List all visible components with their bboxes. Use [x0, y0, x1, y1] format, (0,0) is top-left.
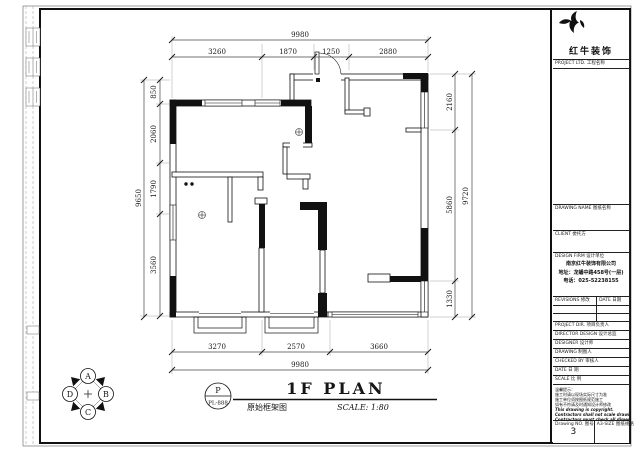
bay-windows: [194, 317, 318, 333]
plan-scale-note: SCALE: 1:80: [337, 403, 389, 412]
stamp-code-label: PL-888: [208, 401, 228, 407]
title-block: 红牛装饰 PROJECT LTD. 工程名称 DRAWING NAME 图纸名称…: [553, 10, 630, 443]
project-name-area: [553, 69, 629, 205]
floor-drain-icon: [199, 212, 206, 219]
dim-left: 1790: [150, 180, 158, 198]
dim-bottom: 3660: [370, 343, 388, 351]
revisions-label: REVISIONS 修改: [553, 297, 596, 303]
dim-right: 2160: [446, 93, 454, 111]
stamp-top-label: P: [215, 386, 221, 395]
client-label: CLIENT 委托方: [553, 231, 629, 237]
dim-top: 2880: [379, 48, 397, 56]
design-firm-section: DESIGN FIRM 设计单位 南京红牛装饰有限公司 地址：龙蟠中路458号(…: [553, 253, 629, 297]
dim-right-overall: 9720: [462, 187, 470, 205]
fold-marks: [26, 6, 40, 446]
compass-icon: A B C D: [63, 369, 114, 420]
drawing-no-value: 3: [553, 427, 594, 443]
sheet-svg: 9980 3260 1870 1250 2880 3270 2570 3660 …: [0, 0, 640, 452]
dim-left-overall: 9650: [135, 189, 143, 207]
drawing-number-row: Drawing NO. 图号 3 A3-SIZE 图纸规格: [553, 421, 629, 443]
revision-row: [553, 314, 629, 322]
dim-left: 850: [150, 85, 158, 98]
compass-west-label: D: [67, 390, 73, 399]
date-col-label: DATE 日期: [597, 297, 629, 303]
dim-bottom: 2570: [287, 343, 305, 351]
dim-left: 3560: [150, 256, 158, 274]
plan-symbols: [184, 78, 320, 219]
designer-label: DESIGNER 设计师: [553, 340, 629, 346]
checked-by-label: CHECKED BY 审核人: [553, 358, 629, 364]
compass-south-label: C: [85, 408, 91, 417]
compass-east-label: B: [103, 390, 109, 399]
dim-top: 3260: [208, 48, 226, 56]
date-row-label: DATE 日 期: [553, 367, 629, 373]
drawing-name-label: DRAWING NAME 图纸名称: [553, 205, 629, 211]
dim-top: 1250: [322, 48, 340, 56]
dim-left: 2060: [150, 125, 158, 143]
compass-north-label: A: [84, 372, 91, 381]
company-address: 地址：龙蟠中路458号(一层): [553, 269, 629, 278]
notes-block: 温馨提示： 施工时请以现场实际尺寸为准 施工单位须按图纸规范施工 如有不符请及时…: [553, 385, 629, 421]
plan-title: 1F PLAN: [286, 379, 385, 398]
revisions-header: REVISIONS 修改 DATE 日期: [553, 297, 629, 306]
dim-top-overall: 9980: [291, 31, 309, 39]
company-phone: 电话：025-52238155: [553, 277, 629, 286]
windows: [170, 92, 428, 317]
dim-bottom: 3270: [208, 343, 226, 351]
drawing-by-label: DRAWING 制图人: [553, 349, 629, 355]
plan-subtitle: 原始框架图: [247, 402, 287, 412]
floor-drain-icon: [296, 129, 303, 136]
dim-bottom-overall: 9980: [291, 361, 309, 369]
plan-title-group: P PL-888 1F PLAN 原始框架图 SCALE: 1:80: [205, 379, 437, 412]
revision-row: [553, 306, 629, 314]
director-design-label: DIRECTOR DESIGN 设计总监: [553, 331, 629, 337]
brand-name: 红牛装饰: [569, 48, 613, 58]
company-name: 南京红牛装饰有限公司: [553, 260, 629, 269]
drawing-sheet: { "plan": { "title": "1F PLAN", "subtitl…: [0, 0, 640, 452]
project-ltd-label: PROJECT LTD. 工程名称: [553, 60, 629, 66]
paper-size-label: A3-SIZE 图纸规格: [595, 421, 636, 427]
scale-row-label: SCALE 比 例: [553, 376, 629, 382]
project-dir-label: PROJECT DIR. 项目负责人: [553, 322, 629, 328]
dim-right: 5860: [446, 196, 454, 214]
design-firm-label: DESIGN FIRM 设计单位: [553, 253, 629, 259]
dim-right: 1330: [446, 290, 454, 308]
floor-plan: [170, 52, 428, 333]
title-block-logo: 红牛装饰: [553, 10, 629, 60]
bull-logo-icon: [553, 10, 587, 36]
dim-top: 1870: [279, 48, 297, 56]
walls-outline: [170, 74, 428, 317]
